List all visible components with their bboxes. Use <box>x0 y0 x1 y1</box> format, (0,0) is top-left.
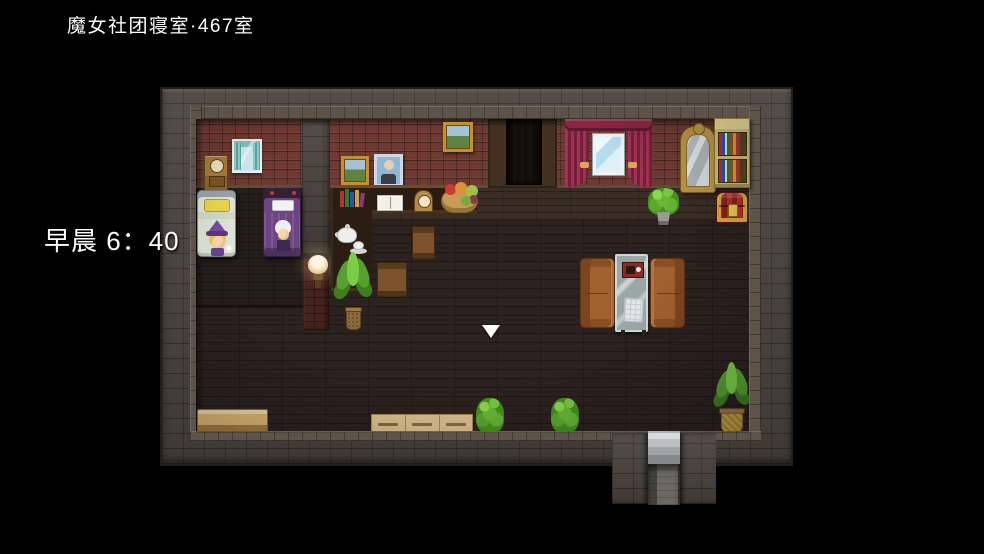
white-pillow <box>272 200 294 211</box>
sofa-right[interactable] <box>650 258 685 328</box>
chair <box>377 262 407 297</box>
yellow-pot <box>721 413 743 433</box>
portrait-painting <box>374 154 403 187</box>
sleeper-face <box>278 229 289 240</box>
bush <box>476 398 504 433</box>
glass-table[interactable] <box>615 254 648 332</box>
destination-cursor-icon <box>482 325 500 338</box>
table-clock <box>414 190 433 212</box>
open-book[interactable] <box>377 195 403 211</box>
treasure-chest[interactable] <box>716 192 748 223</box>
grapes <box>461 196 471 206</box>
bed-witch[interactable] <box>197 190 236 257</box>
bush <box>551 398 579 433</box>
game-viewport[interactable]: 魔女社团寝室·467室 早晨 6：40 <box>0 0 984 554</box>
wall-lintel <box>190 106 761 119</box>
teapot <box>337 227 357 243</box>
crate-slot <box>378 423 398 426</box>
curtain-valance <box>565 119 652 131</box>
canopy-ornament <box>270 191 274 195</box>
blanket-fold <box>198 212 236 219</box>
sofa-left[interactable] <box>580 258 615 328</box>
landscape-painting-high <box>443 122 473 152</box>
potted-plant-small <box>648 188 679 225</box>
small-window <box>232 139 262 173</box>
doily <box>623 298 643 323</box>
bedroom-ledge <box>196 305 304 308</box>
bookshelf-row <box>718 132 747 156</box>
bookshelf-row <box>718 159 747 183</box>
ornate-mirror[interactable] <box>680 126 716 193</box>
yellow-pillow <box>204 199 230 212</box>
sparkle <box>227 246 231 250</box>
large-potted-plant <box>334 252 372 332</box>
lamp-glow <box>308 255 328 274</box>
crate-slot <box>412 423 432 426</box>
curtain-right <box>628 128 652 187</box>
crate-slot <box>446 423 466 426</box>
divider-wall <box>302 119 330 257</box>
clock-cabinet[interactable] <box>204 155 228 191</box>
wall-trim-right <box>749 106 761 433</box>
stair-landing <box>648 464 680 505</box>
bed-white-hair[interactable] <box>263 188 301 257</box>
wall-lamp <box>306 255 330 289</box>
wooden-bench <box>197 409 268 432</box>
bookshelf[interactable] <box>714 118 750 188</box>
table-leg <box>621 330 625 335</box>
canopy-ornament <box>292 191 296 195</box>
lamp-bracket <box>315 280 321 288</box>
grey-pot <box>655 212 672 225</box>
teacup <box>353 241 364 250</box>
curtain-left <box>565 128 589 187</box>
witch-body <box>211 248 224 256</box>
sleeper-body <box>277 240 290 251</box>
landscape-painting <box>341 156 369 185</box>
curtain-tieback <box>580 162 589 168</box>
plant-leaves <box>648 188 679 215</box>
potted-plant-tall <box>716 362 748 433</box>
chair <box>412 226 435 259</box>
red-tray <box>622 262 644 278</box>
time-label: 早晨 6：40 <box>44 221 180 258</box>
exit-pillar-left <box>612 433 648 504</box>
curtained-window <box>565 119 652 189</box>
window-glass <box>593 134 624 175</box>
book-spines <box>340 187 366 207</box>
curtain-tieback <box>628 162 637 168</box>
left-wall-shadow <box>196 119 204 433</box>
table-leg <box>642 330 646 335</box>
stairs-exit[interactable] <box>648 431 680 464</box>
plant-pot <box>346 311 361 330</box>
exit-pillar-right <box>680 433 716 504</box>
location-label: 魔女社团寝室·467室 <box>67 11 255 38</box>
doorway[interactable] <box>506 119 542 185</box>
teapot-lid <box>345 224 350 229</box>
